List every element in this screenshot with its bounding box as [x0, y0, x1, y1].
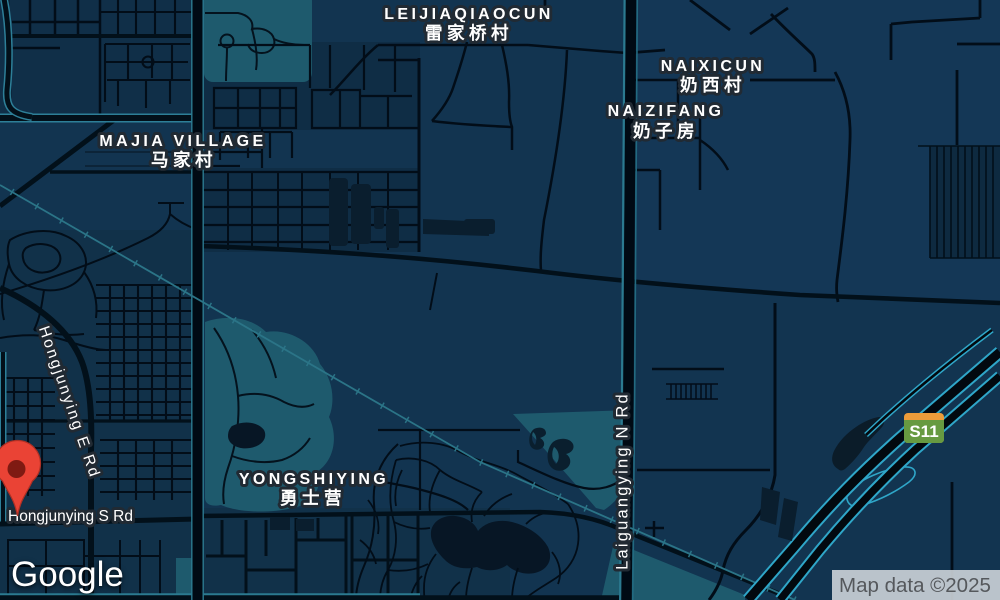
svg-text:奶西村: 奶西村 [680, 75, 746, 95]
svg-text:马家村: 马家村 [151, 150, 217, 170]
svg-text:Hongjunying S Rd: Hongjunying S Rd [8, 508, 133, 525]
svg-text:勇士营: 勇士营 [280, 488, 346, 508]
svg-text:NAIZIFANG: NAIZIFANG [608, 103, 725, 120]
svg-text:YONGSHIYING: YONGSHIYING [239, 471, 389, 488]
svg-text:MAJIA VILLAGE: MAJIA VILLAGE [99, 133, 266, 150]
svg-text:Laiguangying N Rd: Laiguangying N Rd [614, 392, 632, 570]
svg-text:NAIXICUN: NAIXICUN [661, 58, 766, 75]
svg-text:Map data ©2025: Map data ©2025 [839, 574, 991, 597]
svg-text:Google: Google [11, 555, 124, 594]
svg-text:S11: S11 [909, 422, 938, 441]
svg-text:LEIJIAQIAOCUN: LEIJIAQIAOCUN [384, 6, 554, 23]
svg-text:雷家桥村: 雷家桥村 [425, 23, 513, 43]
svg-text:奶子房: 奶子房 [633, 121, 699, 141]
